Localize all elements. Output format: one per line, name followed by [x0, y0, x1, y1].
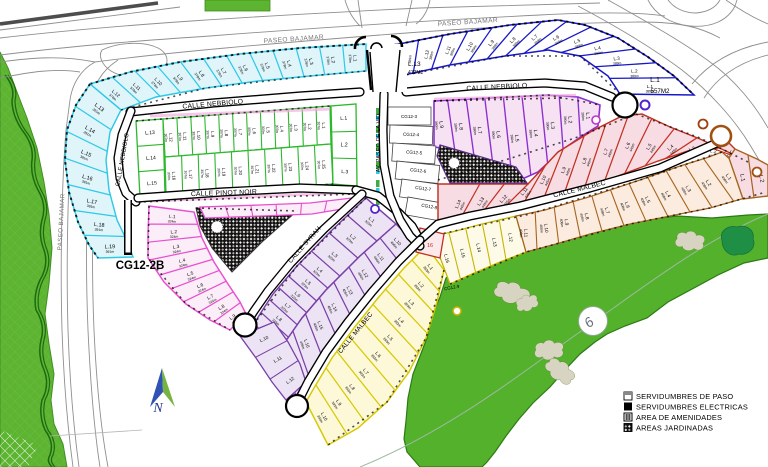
svg-text:L.8: L.8 [224, 130, 229, 137]
svg-text:390m: 390m [580, 112, 585, 121]
svg-text:307m: 307m [250, 165, 254, 174]
svg-text:L.17: L.17 [188, 170, 193, 179]
svg-text:L.11: L.11 [523, 229, 528, 238]
svg-text:324m: 324m [168, 219, 177, 224]
svg-text:557M2: 557M2 [651, 88, 670, 95]
svg-text:307m: 307m [283, 163, 287, 172]
svg-text:L.4: L.4 [279, 126, 284, 133]
svg-text:L.5: L.5 [265, 127, 270, 134]
svg-text:L.2: L.2 [170, 229, 177, 234]
svg-text:307m: 307m [167, 172, 171, 181]
svg-text:307m: 307m [289, 124, 293, 133]
svg-text:16: 16 [427, 243, 433, 249]
svg-text:L.21: L.21 [254, 165, 259, 174]
svg-text:L.13: L.13 [408, 61, 421, 68]
svg-text:307m: 307m [191, 131, 195, 140]
svg-text:389m: 389m [630, 74, 639, 78]
svg-text:307m: 307m [200, 169, 204, 178]
svg-text:L.1: L.1 [321, 122, 326, 129]
svg-text:307m: 307m [183, 170, 187, 179]
svg-text:307m: 307m [303, 122, 307, 131]
svg-text:AREAS JARDINADAS: AREAS JARDINADAS [636, 424, 713, 433]
svg-text:L.6: L.6 [252, 128, 257, 135]
svg-text:307m: 307m [247, 127, 251, 136]
svg-text:390m: 390m [563, 116, 568, 125]
svg-text:L.14: L.14 [146, 155, 156, 162]
svg-text:307m: 307m [219, 129, 223, 138]
svg-text:L.22: L.22 [271, 164, 276, 173]
svg-text:SERVIDUMBRES ELECTRICAS: SERVIDUMBRES ELECTRICAS [636, 403, 748, 412]
svg-text:N: N [152, 401, 163, 416]
svg-text:391m: 391m [106, 250, 115, 254]
svg-text:L.1: L.1 [340, 116, 347, 122]
svg-text:L.2: L.2 [631, 69, 638, 74]
svg-text:L.18: L.18 [204, 169, 209, 178]
svg-text:408m: 408m [539, 224, 544, 233]
svg-text:307m: 307m [233, 167, 237, 176]
svg-text:L.7: L.7 [238, 129, 243, 136]
svg-text:390m: 390m [545, 122, 550, 131]
svg-text:307m: 307m [267, 164, 271, 173]
svg-text:L.13: L.13 [145, 130, 155, 137]
svg-text:391m: 391m [94, 228, 103, 233]
svg-text:307m: 307m [316, 121, 320, 130]
svg-text:L.1: L.1 [650, 77, 660, 84]
svg-text:307m: 307m [205, 130, 209, 139]
svg-text:307m: 307m [164, 133, 168, 142]
svg-text:307m: 307m [316, 161, 320, 170]
svg-text:AREA DE AMENIDADES: AREA DE AMENIDADES [636, 413, 722, 422]
svg-text:L.19: L.19 [221, 168, 226, 177]
svg-text:SERVIDUMBRES DE PASO: SERVIDUMBRES DE PASO [636, 392, 733, 401]
svg-text:AV. PASEO DE LA VID: AV. PASEO DE LA VID [376, 114, 382, 173]
svg-text:307m: 307m [233, 128, 237, 137]
svg-text:L.3: L.3 [341, 169, 348, 175]
svg-text:L.20: L.20 [238, 166, 243, 175]
svg-text:412M2: 412M2 [408, 70, 424, 76]
svg-text:L.15: L.15 [147, 180, 157, 187]
svg-text:378m: 378m [348, 54, 352, 63]
svg-text:CG12-4: CG12-4 [403, 132, 420, 138]
svg-text:L.1: L.1 [352, 55, 357, 62]
svg-text:L.2: L.2 [307, 123, 312, 130]
svg-text:L.16: L.16 [171, 172, 176, 181]
svg-text:408m: 408m [519, 229, 523, 238]
svg-text:CG12-3: CG12-3 [401, 114, 418, 119]
svg-text:L.2: L.2 [341, 143, 348, 149]
svg-text:CG12-2B: CG12-2B [116, 260, 165, 272]
svg-text:L.3: L.3 [293, 125, 298, 132]
svg-text:324m: 324m [170, 235, 179, 239]
svg-text:307m: 307m [261, 126, 265, 135]
svg-text:307m: 307m [178, 132, 182, 141]
svg-text:L.9: L.9 [210, 131, 215, 138]
svg-text:307m: 307m [275, 125, 279, 134]
svg-text:307m: 307m [300, 162, 304, 171]
svg-text:307m: 307m [217, 168, 221, 177]
